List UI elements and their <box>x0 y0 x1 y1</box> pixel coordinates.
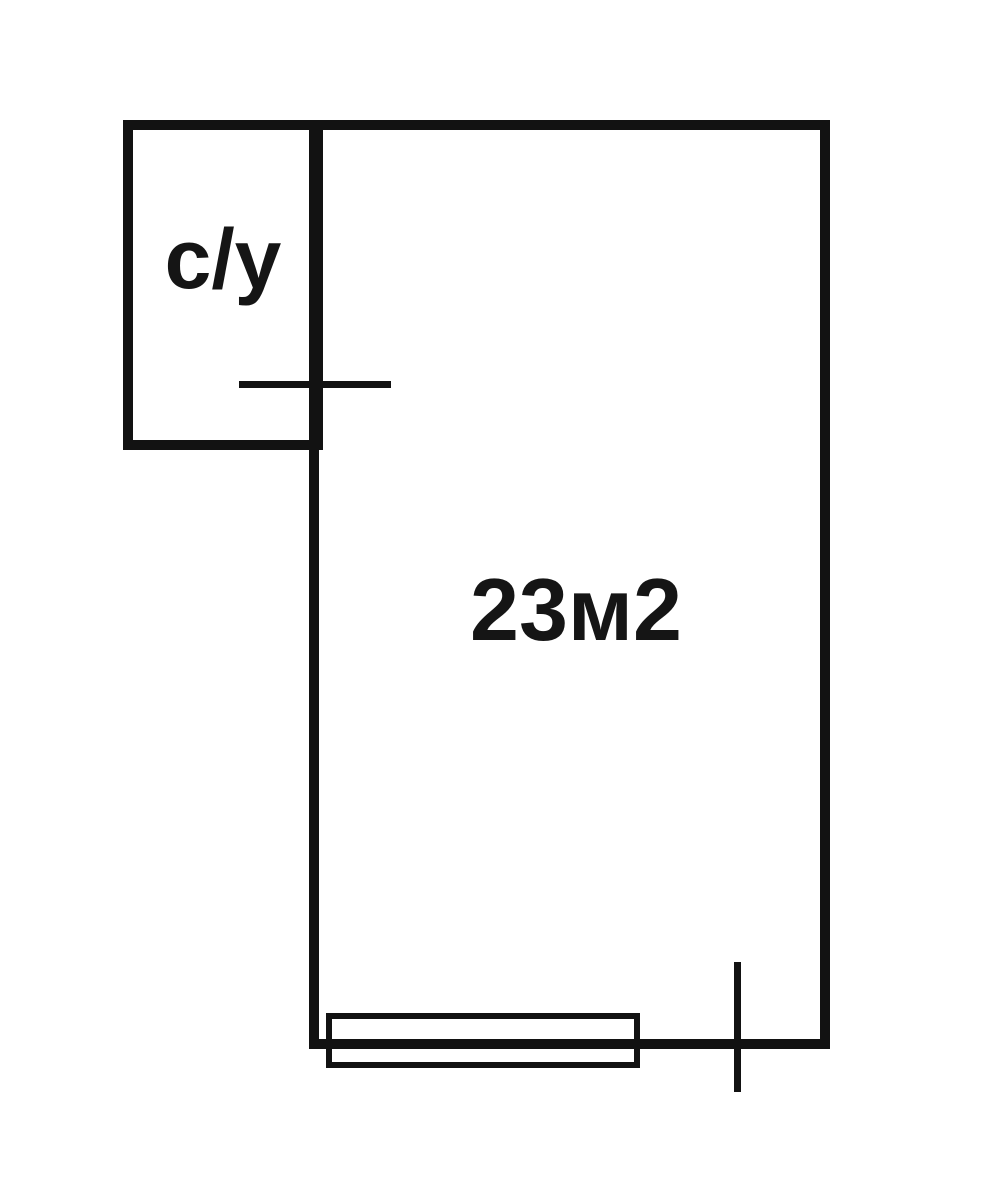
floorplan-canvas: с/у 23м2 <box>0 0 1003 1200</box>
main-room-area-label: 23м2 <box>420 550 732 670</box>
bathroom-label-text: с/у <box>165 217 282 301</box>
door-opening-marker-bottom <box>734 962 741 1092</box>
main-room-area-label-text: 23м2 <box>470 566 682 654</box>
door-opening-marker-bathroom <box>239 381 391 388</box>
bathroom-label: с/у <box>133 196 313 321</box>
window-symbol <box>326 1013 640 1068</box>
